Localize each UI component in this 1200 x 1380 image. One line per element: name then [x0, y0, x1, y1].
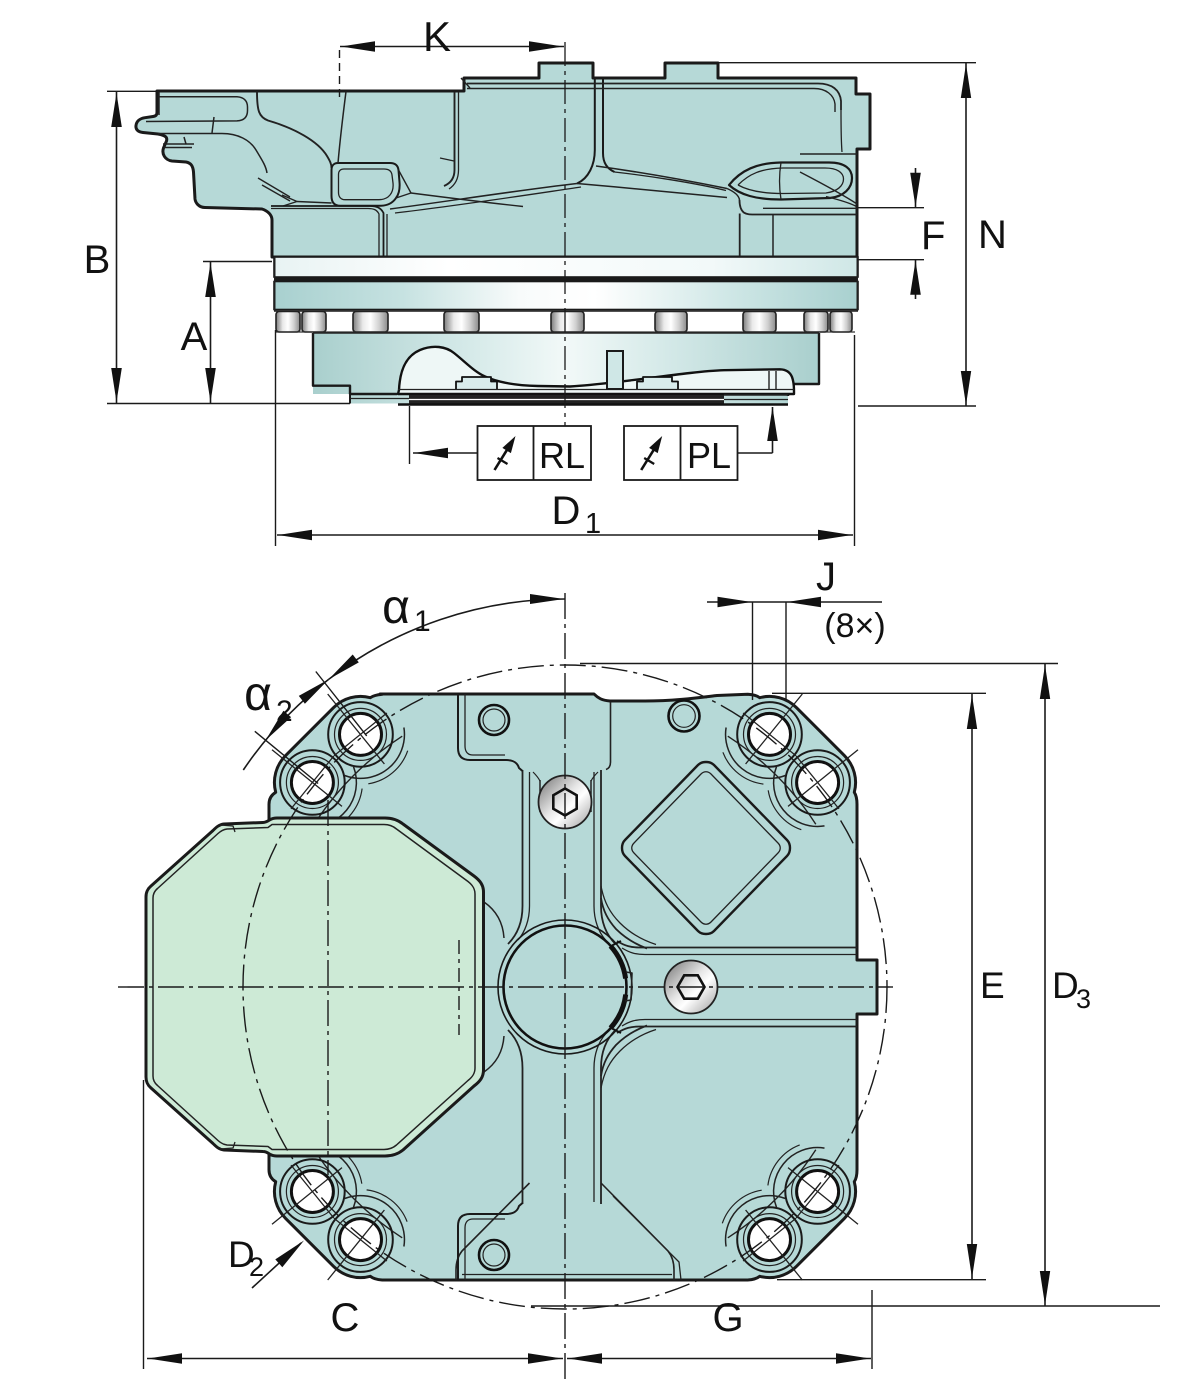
svg-text:J: J: [816, 555, 836, 599]
svg-text:RL: RL: [539, 435, 585, 476]
svg-text:α: α: [244, 668, 272, 721]
svg-text:2: 2: [249, 1252, 264, 1282]
svg-text:G: G: [712, 1296, 743, 1340]
svg-text:A: A: [181, 315, 208, 359]
svg-text:α: α: [382, 581, 410, 634]
svg-text:PL: PL: [687, 435, 731, 476]
svg-text:D: D: [552, 489, 581, 533]
svg-text:3: 3: [1076, 984, 1091, 1014]
svg-text:E: E: [980, 965, 1005, 1006]
svg-text:F: F: [921, 214, 945, 258]
svg-text:2: 2: [276, 695, 293, 728]
svg-text:B: B: [84, 238, 111, 282]
svg-text:D: D: [1052, 965, 1079, 1006]
svg-text:(8×): (8×): [824, 607, 885, 645]
svg-text:C: C: [331, 1296, 360, 1340]
svg-text:K: K: [423, 13, 451, 60]
svg-text:1: 1: [414, 605, 431, 638]
svg-text:N: N: [978, 213, 1007, 257]
svg-text:1: 1: [585, 508, 601, 540]
